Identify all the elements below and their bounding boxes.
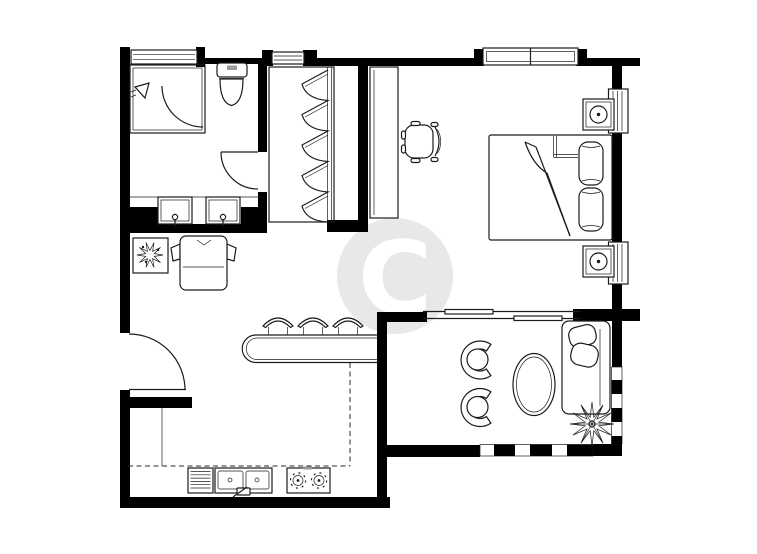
bar-stools	[263, 318, 363, 335]
bedroom-group	[370, 67, 614, 277]
desk-chair	[402, 122, 441, 163]
cooktop	[287, 467, 330, 494]
sofa	[562, 321, 610, 414]
wall-segment	[573, 309, 640, 321]
railing-block	[567, 445, 593, 457]
wall-segment	[612, 321, 622, 367]
wall-segment	[120, 390, 130, 508]
wall-segment	[241, 207, 267, 224]
balcony-group	[461, 321, 614, 446]
plant-leaves	[137, 243, 163, 268]
railing-right	[612, 367, 623, 444]
desk	[370, 67, 398, 218]
bathroom-door	[221, 152, 258, 189]
wall-segment	[262, 50, 273, 66]
wall-segment	[120, 497, 390, 508]
sliding-panel	[514, 316, 562, 321]
wall-segment	[315, 58, 476, 66]
sliding-panel	[445, 310, 493, 315]
bathroom-group	[129, 63, 264, 227]
toilet-flush-label	[227, 66, 237, 71]
pillow	[579, 142, 603, 185]
cooktop-label	[303, 467, 312, 470]
wall-segment	[258, 64, 267, 152]
double-bed	[489, 135, 612, 240]
bar-stool	[263, 318, 293, 335]
wall-segment	[377, 312, 427, 322]
wall-segment	[303, 50, 317, 66]
shower-enclosure	[130, 65, 205, 133]
window-closet	[272, 52, 304, 64]
sink-left	[158, 197, 192, 227]
wall-segment	[358, 66, 368, 232]
dish-rack	[188, 468, 213, 493]
wall-segment	[120, 224, 267, 233]
railing-block	[612, 408, 623, 422]
shower-head-icon	[131, 83, 149, 98]
bar-counter	[242, 335, 377, 363]
bar-stool	[298, 318, 328, 335]
railing-block	[612, 380, 623, 394]
lounge-chair	[461, 388, 491, 426]
shower-door-arc	[162, 86, 203, 127]
wall-segment	[129, 397, 192, 408]
pillow	[579, 188, 603, 231]
wall-segment	[377, 312, 387, 508]
floor-plan-canvas: C	[0, 0, 757, 554]
bar-stool	[333, 318, 363, 335]
sink-right	[206, 197, 240, 227]
wall-segment	[593, 444, 622, 456]
nightstand-lamp-top	[583, 99, 614, 130]
entry-door	[129, 334, 186, 390]
railing-block	[530, 445, 552, 457]
toilet	[217, 63, 247, 106]
railing-block	[612, 436, 623, 444]
sliding-door-balcony	[423, 310, 580, 321]
oval-table	[513, 354, 555, 416]
wall-segment	[129, 207, 158, 224]
wall-segment	[120, 47, 130, 333]
wall-segment	[383, 445, 480, 457]
wall-segment	[612, 132, 622, 243]
hanging-clothes	[302, 70, 328, 222]
wall-segment	[612, 58, 622, 92]
window-bathroom	[131, 50, 197, 64]
framed-plant	[133, 238, 168, 273]
wardrobe-outline	[269, 67, 334, 222]
lounge-chair	[461, 341, 491, 379]
window-bedroom-top	[483, 48, 578, 65]
armchair	[171, 236, 236, 290]
floor-plan-drawing	[0, 0, 757, 554]
railing-block	[494, 445, 515, 457]
wall-segment	[612, 283, 622, 311]
kitchen-group	[128, 363, 377, 498]
kitchen-sink	[215, 468, 272, 497]
living-dining-group	[129, 236, 377, 390]
closet-group	[269, 67, 334, 222]
nightstand-lamp-bottom	[583, 246, 614, 277]
